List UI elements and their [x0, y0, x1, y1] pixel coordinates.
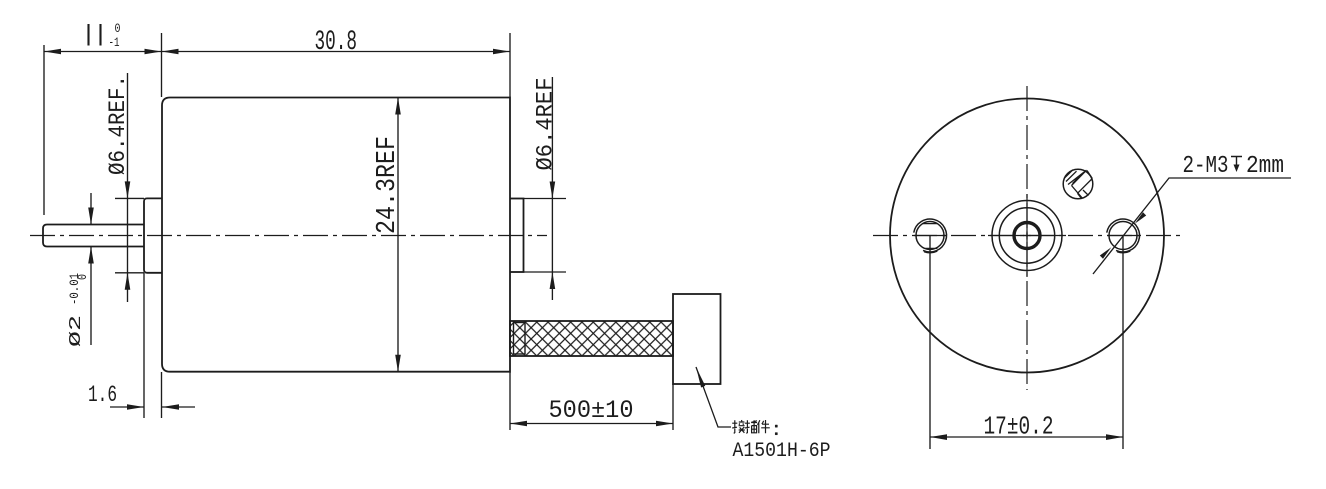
svg-text:A1501H-6P: A1501H-6P [733, 440, 831, 463]
svg-text:24.3REF: 24.3REF [372, 136, 402, 234]
svg-text:2-M3: 2-M3 [1183, 153, 1229, 180]
svg-text:1.6: 1.6 [88, 382, 117, 408]
svg-text:500±10: 500±10 [549, 396, 634, 425]
svg-text:-0.01: -0.01 [68, 273, 82, 305]
svg-text:0: 0 [115, 21, 121, 36]
svg-text:Ø6.4REF.: Ø6.4REF. [105, 75, 131, 175]
svg-text:Ø6.4REF: Ø6.4REF [533, 78, 559, 171]
svg-text:30.8: 30.8 [315, 27, 358, 58]
svg-text:-1: -1 [109, 35, 120, 50]
svg-text:Ø2: Ø2 [67, 315, 86, 347]
svg-text:17±0.2: 17±0.2 [984, 412, 1054, 442]
svg-text:2mm: 2mm [1246, 153, 1284, 180]
